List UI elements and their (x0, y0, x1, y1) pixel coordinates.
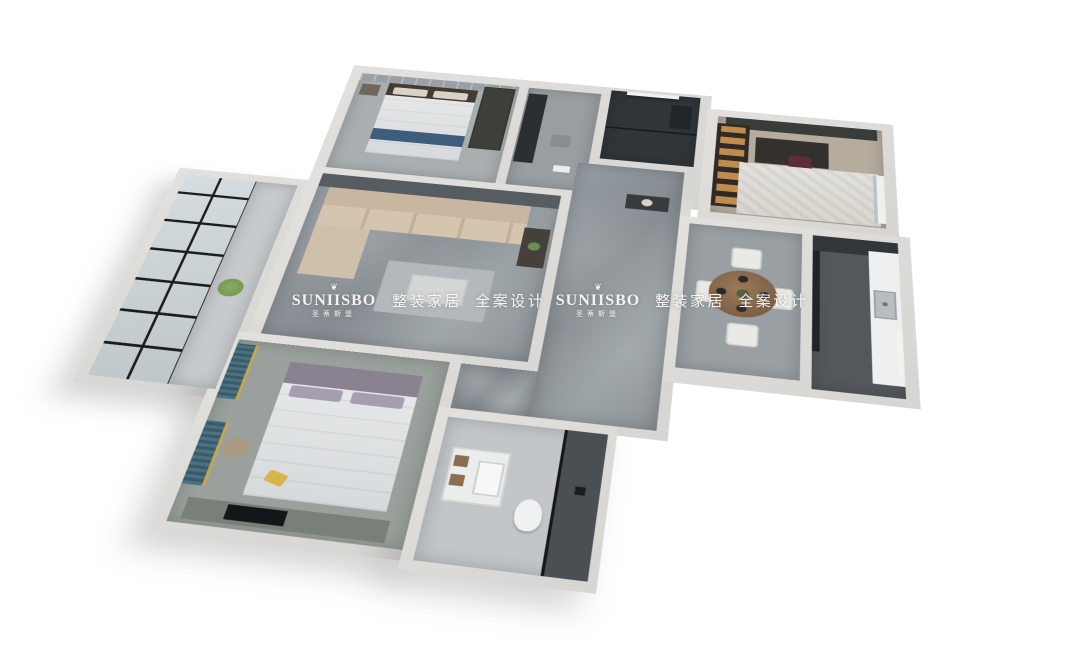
plate (738, 275, 748, 283)
nightstand (359, 83, 382, 96)
watermark-tagline: 整装家居 全案设计 (392, 290, 545, 311)
watermark-brand: SUNIISBO (284, 293, 384, 309)
apartment-3d-scene (0, 57, 937, 646)
tv (223, 504, 288, 526)
watermark-logo: ❦ SUNIISBO 圣蒂斯堡 (284, 283, 384, 318)
dining-chair (731, 247, 763, 270)
table-lamp (641, 199, 653, 207)
faucet (882, 302, 888, 306)
dining-chair (725, 322, 759, 348)
vanity-basin (472, 461, 506, 498)
kitchen-sink (873, 290, 897, 320)
bed (365, 83, 479, 161)
entry-corridor (450, 363, 537, 416)
watermark-tagline: 整装家居 全案设计 (655, 290, 808, 311)
vanity (440, 447, 511, 508)
sliding-door (812, 250, 820, 351)
bed-runner (370, 128, 466, 147)
wood-drawer (448, 474, 465, 487)
apartment-plan (0, 57, 937, 646)
bathroom-dark (600, 90, 701, 167)
kitchen (812, 235, 907, 399)
pillow-yellow (263, 469, 289, 487)
ornament-icon: ❦ (548, 283, 648, 292)
wood-drawer (453, 455, 470, 468)
watermark-logo: ❦ SUNIISBO 圣蒂斯堡 (548, 283, 648, 318)
watermark-brand-cn: 圣蒂斯堡 (284, 311, 384, 318)
bedroom-secondary (325, 73, 519, 183)
watermark-brand: SUNIISBO (548, 293, 648, 309)
bathroom-main (413, 417, 605, 582)
floor-mat (553, 165, 571, 173)
sofa-chaise (297, 224, 370, 279)
shower-head (574, 486, 586, 495)
shower-fixture (669, 105, 693, 130)
lounge-chair (220, 436, 253, 459)
ornament-icon: ❦ (284, 283, 384, 292)
watermark-brand-cn: 圣蒂斯堡 (548, 311, 648, 318)
floor-plan-render: ❦ SUNIISBO 圣蒂斯堡 整装家居 全案设计 ❦ SUNIISBO 圣蒂斯… (0, 0, 1080, 608)
study (710, 116, 886, 228)
plant-small (527, 242, 541, 251)
toilet (511, 498, 544, 533)
window (873, 175, 886, 224)
side-chair (550, 134, 572, 148)
console-table (625, 194, 670, 212)
bed (243, 362, 423, 512)
plant (214, 278, 246, 298)
